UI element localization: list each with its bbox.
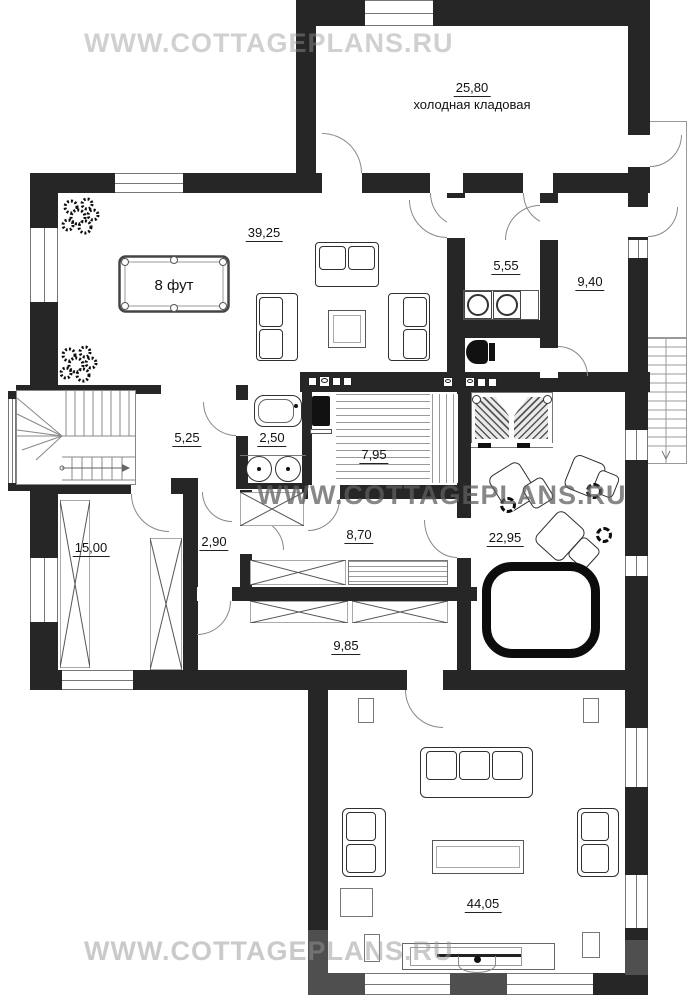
watermark: WWW.COTTAGEPLANS.RU xyxy=(257,480,626,511)
living-room-area: 44,05 xyxy=(465,896,502,913)
room-area-label: 44,05 xyxy=(465,896,502,911)
door-arc xyxy=(409,200,447,238)
flue-vent xyxy=(343,377,352,386)
window xyxy=(365,973,450,995)
sofa-cushion xyxy=(348,246,375,270)
flue-vent xyxy=(443,377,453,387)
back-hall-area: 9,40 xyxy=(575,274,604,291)
window xyxy=(625,430,648,460)
pool-table-size: 8 фут xyxy=(154,277,193,294)
hot-tub xyxy=(482,562,600,658)
stove-tray xyxy=(310,429,332,434)
wardrobe xyxy=(60,500,90,668)
room-area-label: 2,90 xyxy=(199,534,228,549)
side-table xyxy=(340,888,373,917)
door-opening xyxy=(430,173,463,193)
wall xyxy=(308,690,328,930)
cold-storage-name: холодная кладовая xyxy=(413,97,530,112)
room-area-label: 39,25 xyxy=(246,225,283,240)
sofa-cushion xyxy=(459,751,490,780)
room-area-label: 15,00 xyxy=(73,540,110,555)
coffee-table-inner xyxy=(436,846,520,868)
sauna-bench xyxy=(432,394,458,483)
door-arc xyxy=(405,690,443,728)
shower-head-icon xyxy=(472,395,481,404)
sofa-cushion xyxy=(581,812,609,841)
door-stop xyxy=(478,443,491,448)
wall xyxy=(625,676,648,975)
drain-icon xyxy=(257,467,261,471)
sauna-bench xyxy=(336,394,430,483)
room-area-label: 9,85 xyxy=(331,638,360,653)
watermark: WWW.COTTAGEPLANS.RU xyxy=(84,28,453,59)
washer-drum-icon xyxy=(496,294,518,316)
room-area-label: 2,50 xyxy=(257,430,286,445)
sofa-cushion xyxy=(346,844,376,873)
door-arc xyxy=(203,402,236,436)
door-opening xyxy=(407,670,443,690)
room-area-label: 7,95 xyxy=(359,447,388,462)
window xyxy=(625,556,648,576)
sofa-cushion xyxy=(346,812,376,841)
door-opening xyxy=(523,173,553,193)
sofa-cushion xyxy=(319,246,346,270)
bench xyxy=(250,560,346,585)
toilet xyxy=(466,340,488,364)
wall xyxy=(450,973,507,995)
lounge-area: 9,85 xyxy=(331,638,360,655)
bathtub-inner xyxy=(258,399,294,423)
wall xyxy=(308,973,368,995)
speaker xyxy=(583,698,599,723)
speaker xyxy=(358,698,374,723)
door-arc xyxy=(424,520,457,558)
exterior-stairs xyxy=(645,338,687,464)
door-arc xyxy=(322,133,362,173)
window xyxy=(507,973,593,995)
wall xyxy=(296,0,650,26)
rest-room-area: 8,70 xyxy=(344,527,373,544)
window xyxy=(30,228,58,302)
room-name-label: холодная кладовая xyxy=(413,97,530,112)
spa-room-area: 22,95 xyxy=(487,530,524,547)
floor-plan: 8 фут xyxy=(0,0,688,995)
bench xyxy=(348,560,448,585)
window xyxy=(625,875,648,928)
sauna-area: 7,95 xyxy=(359,447,388,464)
billiard-area: 39,25 xyxy=(246,225,283,242)
room-area-label: 5,25 xyxy=(172,430,201,445)
door-arc xyxy=(505,205,540,240)
wardrobe xyxy=(150,538,182,670)
window xyxy=(625,728,648,787)
bench xyxy=(352,601,448,623)
door-opening xyxy=(447,198,465,238)
room-area-label: 8,70 xyxy=(344,527,373,542)
door-stop xyxy=(517,443,530,448)
window xyxy=(365,0,433,26)
sofa-cushion xyxy=(403,329,427,359)
plant-icon xyxy=(56,342,100,386)
stair-hall-area: 5,25 xyxy=(172,430,201,447)
bathroom-area: 2,50 xyxy=(257,430,286,447)
toilet-tank xyxy=(489,343,495,361)
sofa-cushion xyxy=(259,297,283,327)
sofa-cushion xyxy=(426,751,457,780)
faucet-icon xyxy=(294,404,298,408)
flue-vent xyxy=(308,377,317,386)
door-opening xyxy=(131,478,171,494)
door-opening xyxy=(236,400,248,436)
sofa-cushion xyxy=(492,751,523,780)
vanity-counter xyxy=(240,455,306,456)
door-opening xyxy=(457,518,471,558)
sofa-cushion xyxy=(259,329,283,359)
bench xyxy=(250,601,348,623)
flue-vent xyxy=(319,376,330,387)
door-arc xyxy=(558,346,588,376)
door-arc xyxy=(197,601,231,635)
cold-storage-area: 25,80 xyxy=(454,80,491,97)
door-opening xyxy=(540,348,558,378)
door-opening xyxy=(322,173,362,193)
storage-room-area: 15,00 xyxy=(73,540,110,557)
door-arc xyxy=(202,492,232,522)
laundry-area: 5,55 xyxy=(491,258,520,275)
flue-vent xyxy=(488,378,497,387)
bay-window xyxy=(8,399,16,483)
wall xyxy=(447,320,558,338)
wall xyxy=(183,478,198,670)
sauna-stove xyxy=(312,396,330,426)
door-opening xyxy=(197,587,232,601)
window xyxy=(628,240,648,258)
wall xyxy=(625,940,648,975)
plant-icon xyxy=(58,194,102,238)
sofa-cushion xyxy=(581,844,609,873)
sofa-cushion xyxy=(403,297,427,327)
tv-mount-dot xyxy=(474,956,481,963)
drain-icon xyxy=(286,467,290,471)
window xyxy=(115,173,183,193)
door-opening xyxy=(540,203,558,240)
wall-fireplace xyxy=(300,372,650,392)
coffee-table-inner xyxy=(333,315,361,343)
shower-head-icon xyxy=(543,395,552,404)
plant-icon xyxy=(596,527,612,543)
flue-vent xyxy=(465,377,475,387)
watermark: WWW.COTTAGEPLANS.RU xyxy=(84,936,453,967)
flue-vent xyxy=(477,378,486,387)
room-area-label: 25,80 xyxy=(454,80,491,95)
room-area-label: 9,40 xyxy=(575,274,604,289)
door-opening xyxy=(628,207,648,237)
flue-vent xyxy=(332,377,341,386)
washer-drum-icon xyxy=(467,294,489,316)
room-area-label: 22,95 xyxy=(487,530,524,545)
window xyxy=(62,670,133,690)
door-opening xyxy=(628,135,650,167)
window xyxy=(30,558,58,622)
staircase xyxy=(16,390,136,485)
corridor-area: 2,90 xyxy=(199,534,228,551)
door-arc xyxy=(131,494,169,532)
speaker xyxy=(582,932,600,958)
room-area-label: 5,55 xyxy=(491,258,520,273)
pool-table-label: 8 фут xyxy=(154,277,193,294)
